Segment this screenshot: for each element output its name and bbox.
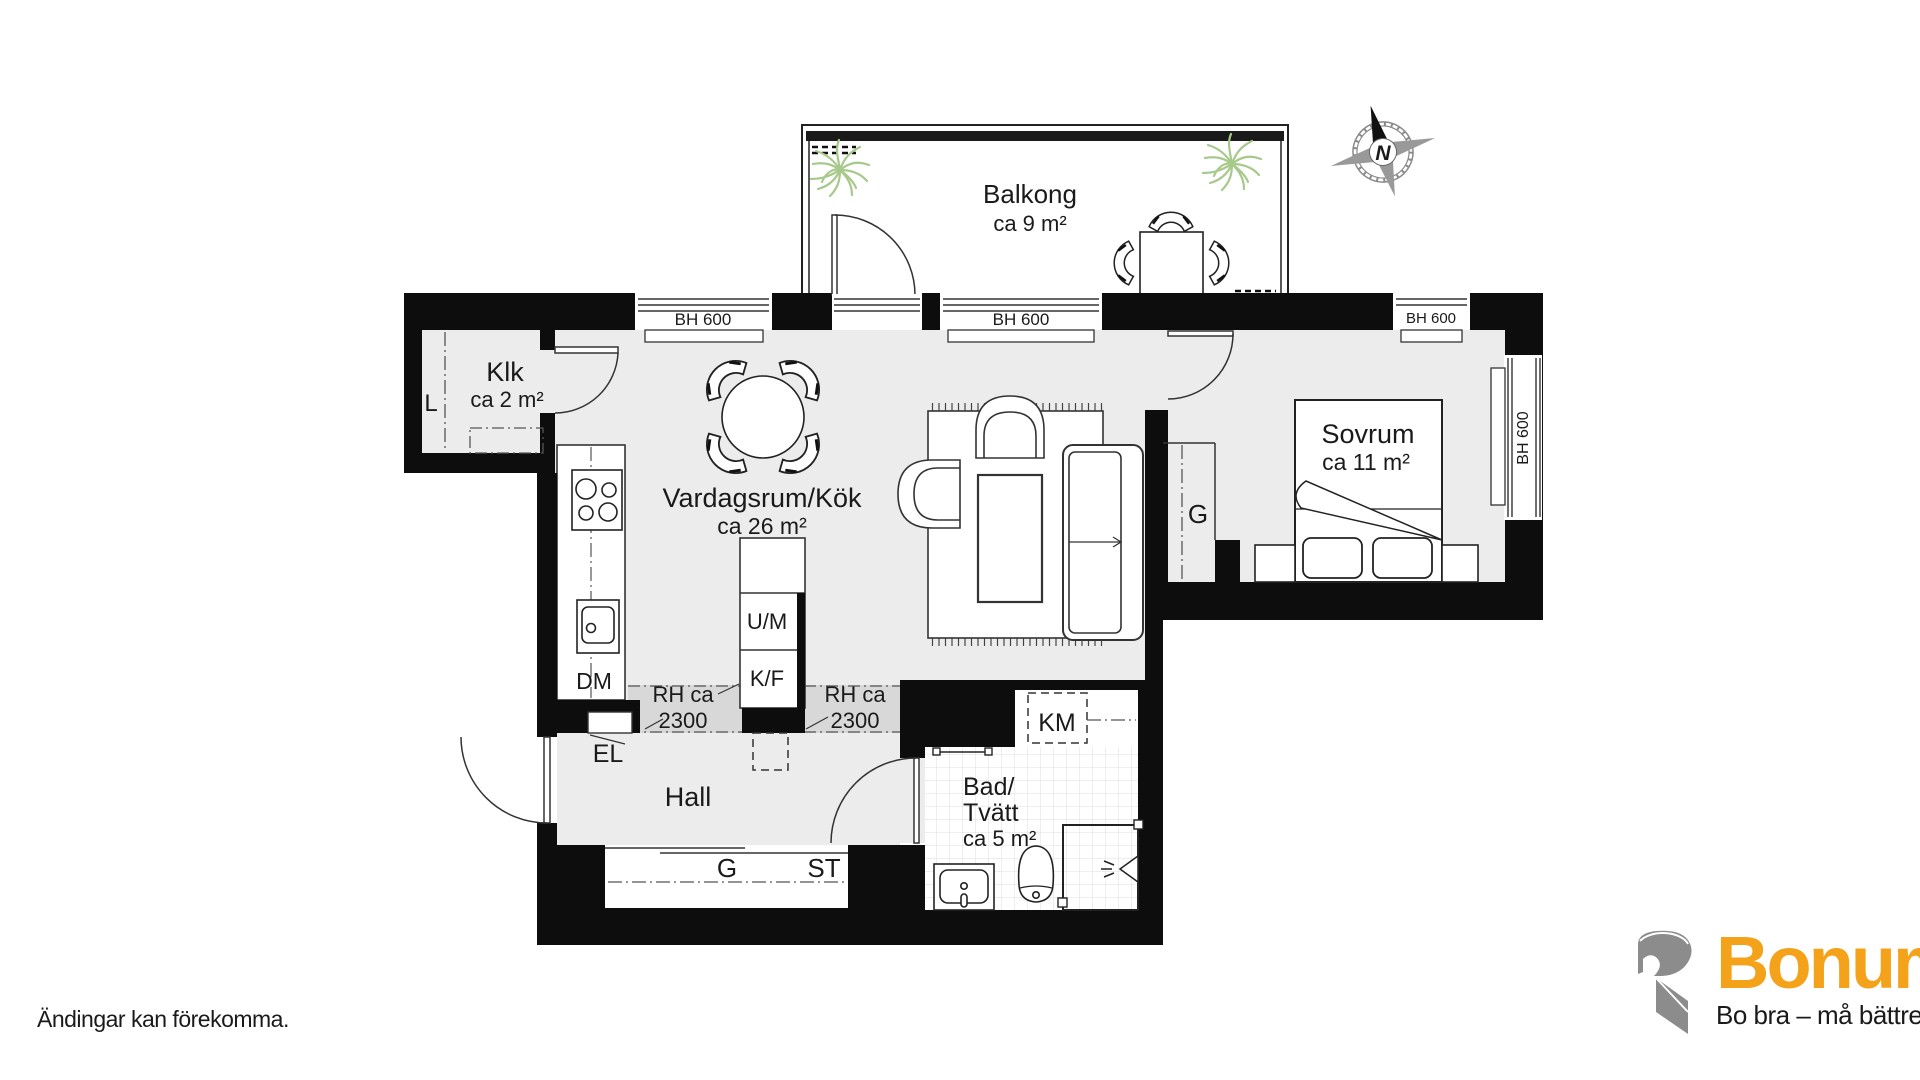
linen-closet-label: L	[424, 390, 437, 417]
living-area: ca 26 m²	[717, 513, 807, 539]
hall-wardrobe-label: G	[717, 853, 737, 883]
window-bedroom-top: BH 600	[1393, 294, 1470, 342]
balcony-door-glazing	[832, 294, 922, 330]
rh-right-line1: RH ca	[824, 682, 886, 707]
bath-door-leaf	[914, 758, 919, 843]
compass-north-label: N	[1375, 142, 1391, 165]
window-height-label: BH 600	[993, 310, 1050, 329]
bedroom-label: Sovrum	[1321, 419, 1414, 449]
washing-machine-label: KM	[1038, 709, 1076, 737]
balcony-label: Balkong	[983, 179, 1077, 209]
electrical-cabinet	[588, 712, 632, 733]
toilet	[1019, 846, 1054, 902]
bath-sink	[934, 864, 994, 910]
compass-rose: N	[1318, 92, 1447, 211]
rh-left-line2: 2300	[659, 708, 708, 733]
dining-table	[722, 376, 804, 458]
brand-name: Bonum	[1716, 928, 1920, 998]
window-height-label: BH 600	[675, 310, 732, 329]
window-bedroom-right: BH 600	[1491, 355, 1542, 520]
bonum-logo-icon	[1626, 928, 1706, 1036]
window-height-label: BH 600	[1515, 411, 1532, 464]
window-sill	[948, 330, 1094, 342]
klk-door-leaf	[555, 347, 618, 353]
bedroom-door-leaf	[1168, 331, 1233, 336]
electrical-label: EL	[593, 740, 624, 768]
stove	[572, 470, 622, 530]
disclaimer-text: Ändingar kan förekomma.	[37, 1006, 289, 1033]
armchair	[976, 396, 1044, 458]
cleaning-closet-label: ST	[807, 853, 840, 883]
sink	[577, 600, 619, 653]
floor-plan-drawing: Balkong ca 9 m²	[0, 0, 1920, 1080]
klk-label: Klk	[486, 357, 524, 387]
floor-plan-page: Balkong ca 9 m²	[0, 0, 1920, 1080]
coffee-table	[978, 475, 1042, 602]
bath-label-line1: Bad/	[963, 773, 1014, 801]
bedroom-wardrobe-label: G	[1188, 499, 1208, 529]
living-label: Vardagsrum/Kök	[662, 483, 862, 513]
balcony: Balkong ca 9 m²	[802, 125, 1288, 296]
window-sill	[645, 330, 763, 342]
fridge-freezer-label: K/F	[750, 666, 784, 691]
pillow	[1303, 538, 1362, 578]
pillow	[1373, 538, 1432, 578]
armchair	[898, 460, 960, 528]
dishwasher-label: DM	[576, 668, 612, 694]
brand-tagline: Bo bra – må bättre	[1716, 1000, 1920, 1031]
balcony-door-leaf	[832, 215, 837, 295]
bath-label-line2: Tvätt	[963, 799, 1019, 827]
entrance-door-leaf	[544, 737, 550, 823]
rh-right-line2: 2300	[831, 708, 880, 733]
sofa	[1063, 445, 1143, 640]
klk-area: ca 2 m²	[470, 387, 543, 412]
patio-table	[1140, 232, 1203, 294]
km-niche	[1015, 690, 1138, 747]
bonum-logo: Bonum Bo bra – må bättre	[1626, 928, 1920, 1036]
window-living: BH 600	[940, 294, 1102, 342]
balcony-top-rail	[806, 131, 1284, 141]
nightstand	[1442, 545, 1478, 582]
window-sill	[1401, 330, 1462, 342]
hall-label: Hall	[665, 782, 712, 812]
balcony-area: ca 9 m²	[993, 211, 1066, 236]
window-kitchen: BH 600	[635, 294, 772, 342]
rh-left-line1: RH ca	[652, 682, 714, 707]
entrance-door-swing	[461, 737, 547, 823]
bath-area: ca 5 m²	[963, 826, 1036, 851]
window-height-label: BH 600	[1406, 310, 1456, 327]
oven-microwave-label: U/M	[747, 609, 787, 634]
radiator	[1491, 368, 1505, 505]
bedroom-area: ca 11 m²	[1322, 449, 1410, 475]
nightstand	[1255, 545, 1295, 582]
